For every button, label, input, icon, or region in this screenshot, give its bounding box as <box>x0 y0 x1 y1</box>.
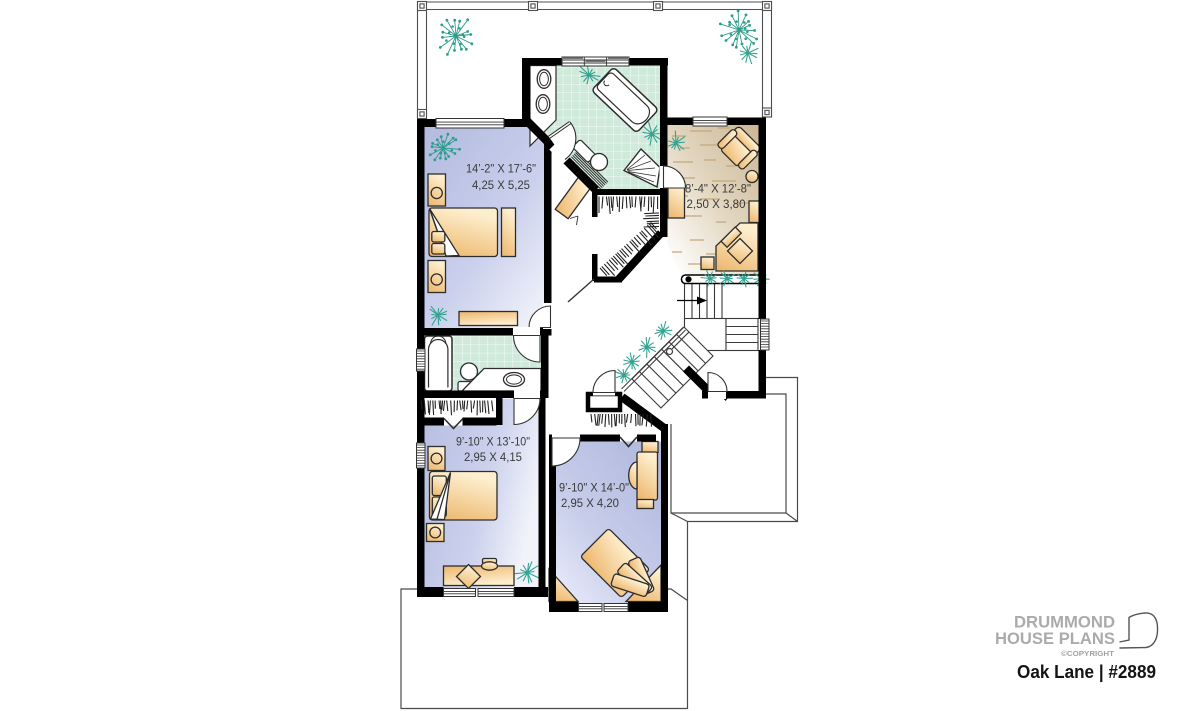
svg-text:2,95 X 4,15: 2,95 X 4,15 <box>464 450 522 464</box>
svg-text:9’-10" X 14’-0": 9’-10" X 14’-0" <box>559 481 629 495</box>
svg-text:4,25 X 5,25: 4,25 X 5,25 <box>472 178 530 192</box>
svg-text:9’-10" X 13’-10": 9’-10" X 13’-10" <box>456 435 530 449</box>
svg-text:HOUSE PLANS: HOUSE PLANS <box>995 629 1115 648</box>
svg-text:8’-4" X 12’-8": 8’-4" X 12’-8" <box>685 182 751 196</box>
svg-text:14’-2" X 17’-6": 14’-2" X 17’-6" <box>466 162 536 176</box>
svg-text:2,95 X 4,20: 2,95 X 4,20 <box>561 496 619 510</box>
svg-text:Oak Lane | #2889: Oak Lane | #2889 <box>1017 661 1156 682</box>
svg-text:©COPYRIGHT: ©COPYRIGHT <box>1061 650 1115 658</box>
svg-text:2,50 X 3,80: 2,50 X 3,80 <box>687 197 746 211</box>
